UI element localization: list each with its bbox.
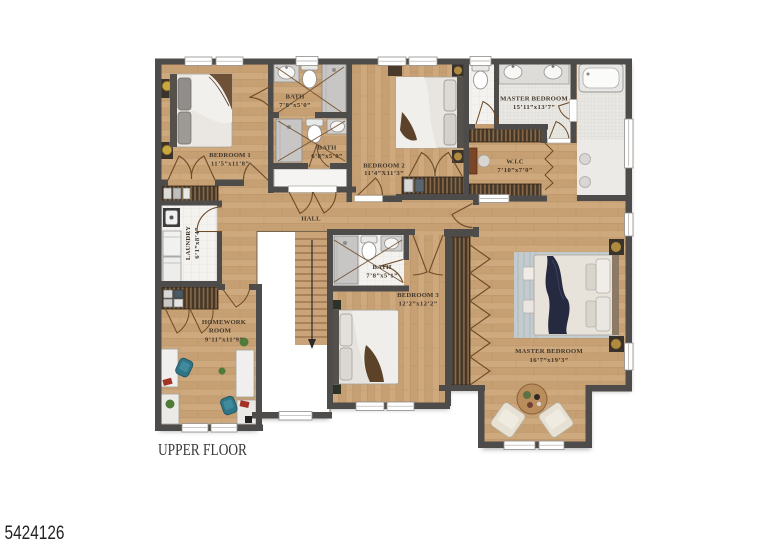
svg-text:16’7”x19’3”: 16’7”x19’3” <box>530 357 569 364</box>
svg-text:5424126: 5424126 <box>5 523 65 542</box>
svg-text:ROOM: ROOM <box>209 328 232 335</box>
svg-text:6’8”x5’0”: 6’8”x5’0” <box>311 153 343 160</box>
svg-text:7’8”x5’0”: 7’8”x5’0” <box>279 102 311 109</box>
svg-text:HALL: HALL <box>301 216 321 223</box>
svg-text:W.I.C: W.I.C <box>506 159 524 166</box>
svg-text:BEDROOM 1: BEDROOM 1 <box>209 152 251 159</box>
svg-text:11’4”X11’3”: 11’4”X11’3” <box>364 170 404 177</box>
svg-text:LAUNDRY: LAUNDRY <box>185 226 192 260</box>
svg-text:9’11”x11’9”: 9’11”x11’9” <box>205 337 243 344</box>
svg-text:7’8”x5’1”: 7’8”x5’1” <box>366 273 398 280</box>
svg-text:11’5”x11’8”: 11’5”x11’8” <box>211 161 249 168</box>
svg-text:15’11”x13’7”: 15’11”x13’7” <box>513 104 556 111</box>
svg-text:BEDROOM 2: BEDROOM 2 <box>363 163 405 170</box>
svg-text:MASTER BEDROOM: MASTER BEDROOM <box>500 96 568 103</box>
svg-text:HOMEWORK: HOMEWORK <box>202 319 247 326</box>
svg-text:12’2”x12’2”: 12’2”x12’2” <box>399 301 438 308</box>
svg-text:UPPER FLOOR: UPPER FLOOR <box>158 440 247 459</box>
svg-text:BATH: BATH <box>317 145 337 152</box>
svg-text:MASTER BEDROOM: MASTER BEDROOM <box>515 348 583 355</box>
svg-text:BATH: BATH <box>372 264 392 271</box>
svg-text:7’10”x7’0”: 7’10”x7’0” <box>497 167 532 174</box>
svg-text:6’1”x8’4”: 6’1”x8’4” <box>194 227 201 259</box>
svg-text:BATH: BATH <box>285 94 305 101</box>
svg-text:BEDROOM 3: BEDROOM 3 <box>397 292 439 299</box>
